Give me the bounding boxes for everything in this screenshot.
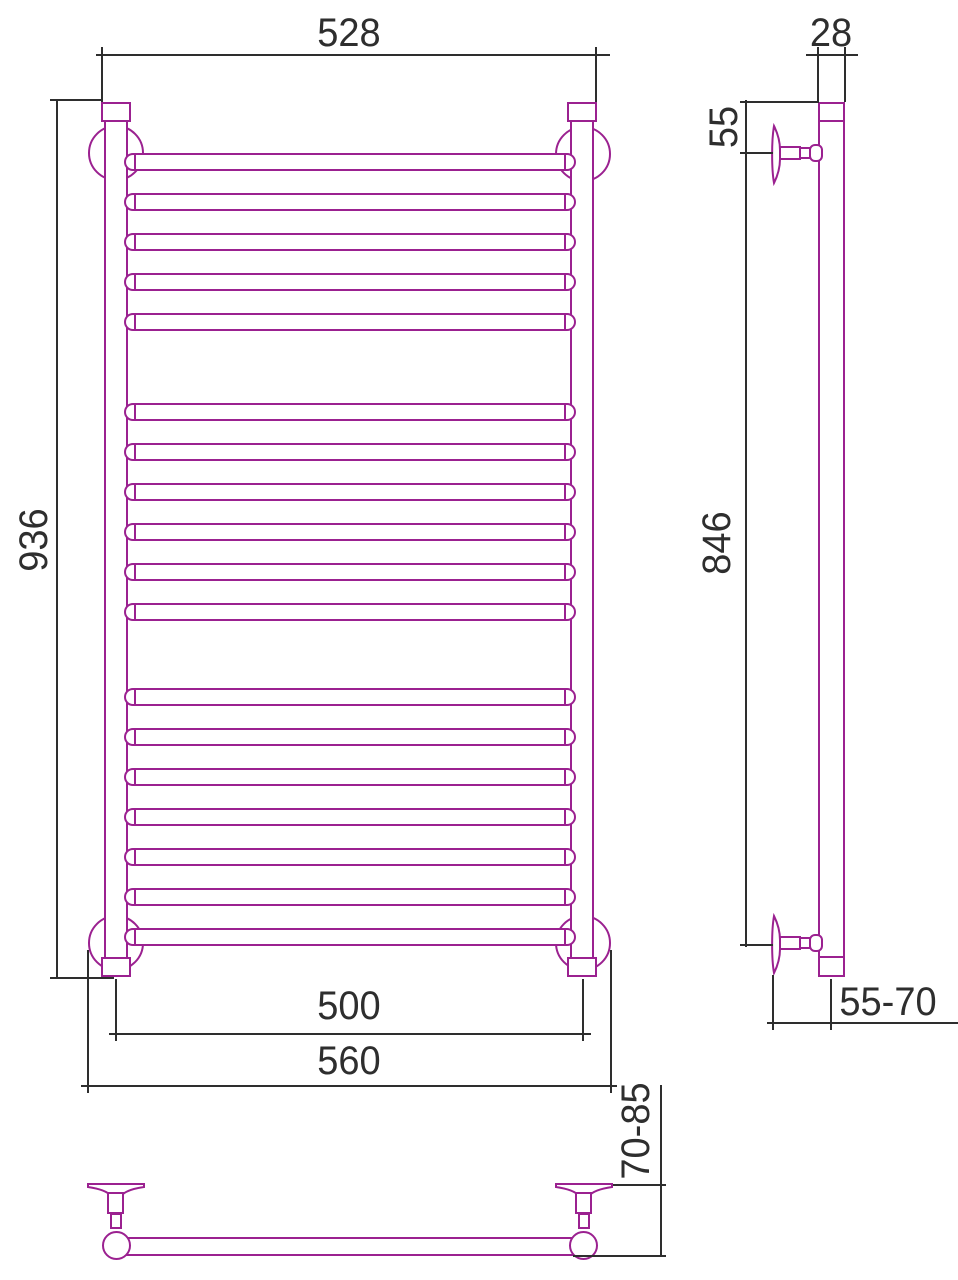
dim-70-85-label: 70-85 bbox=[616, 1069, 656, 1193]
dim-28-label: 28 bbox=[807, 13, 855, 53]
dim-28-ext-right bbox=[844, 52, 846, 102]
rung bbox=[124, 313, 576, 331]
dim-55-label: 55 bbox=[704, 89, 744, 165]
bracket-knob bbox=[810, 145, 822, 161]
bottom-view-stem-step-right bbox=[578, 1213, 590, 1229]
dim-528-ext-right bbox=[595, 52, 597, 102]
dim-70-85-line bbox=[660, 1085, 662, 1257]
dim-560-label: 560 bbox=[302, 1041, 397, 1081]
side-wall-bracket-bottom bbox=[768, 913, 824, 977]
dim-528-ext-left bbox=[101, 52, 103, 102]
dim-55-846-line bbox=[745, 100, 747, 947]
dim-500-label: 500 bbox=[302, 986, 397, 1026]
dim-560-tick-left bbox=[87, 1079, 89, 1093]
dim-560-tick-right bbox=[610, 1079, 612, 1093]
bracket-stem-step bbox=[800, 148, 810, 158]
dim-560-ext-left bbox=[87, 950, 89, 1092]
rung bbox=[124, 273, 576, 291]
dim-500-tick-right bbox=[582, 1027, 584, 1041]
dim-936-tick-top bbox=[50, 99, 103, 101]
left-post-bottom-cap bbox=[101, 957, 131, 977]
bracket-stem-step bbox=[800, 938, 810, 948]
dim-560-line bbox=[81, 1085, 617, 1087]
right-post-top-cap bbox=[567, 102, 597, 122]
dim-846-label: 846 bbox=[697, 486, 737, 600]
rung bbox=[124, 888, 576, 906]
side-post-top-cap-line bbox=[820, 120, 843, 122]
bracket-flange-profile bbox=[772, 126, 780, 183]
dim-936-line bbox=[56, 100, 58, 979]
left-post bbox=[104, 102, 128, 977]
rung bbox=[124, 688, 576, 706]
dim-55-tick-bottom bbox=[740, 152, 773, 154]
rung bbox=[124, 233, 576, 251]
rung bbox=[124, 848, 576, 866]
bottom-view-stem-left bbox=[107, 1192, 124, 1214]
dim-528-label: 528 bbox=[300, 13, 399, 53]
right-post bbox=[570, 102, 594, 977]
bracket-flange-profile bbox=[772, 916, 780, 973]
bracket-stem bbox=[780, 147, 800, 159]
rung bbox=[124, 193, 576, 211]
rung bbox=[124, 728, 576, 746]
right-post-bottom-cap bbox=[567, 957, 597, 977]
rung bbox=[124, 443, 576, 461]
bracket-knob bbox=[810, 935, 822, 951]
side-post bbox=[818, 102, 845, 977]
technical-drawing-canvas: 528 936 500 560 bbox=[0, 0, 958, 1280]
rung bbox=[124, 153, 576, 171]
rung bbox=[124, 928, 576, 946]
rung bbox=[124, 808, 576, 826]
dim-936-tick-bottom bbox=[50, 977, 114, 979]
dim-500-line bbox=[109, 1033, 591, 1035]
dim-846-tick-bottom bbox=[740, 944, 773, 946]
bottom-view-stem-right bbox=[575, 1192, 592, 1214]
left-post-top-cap bbox=[101, 102, 131, 122]
bottom-view-post-end-left bbox=[102, 1231, 131, 1260]
dim-28-ext-left bbox=[817, 52, 819, 102]
dim-70-85-tick-bottom bbox=[573, 1255, 666, 1257]
bottom-view-tube bbox=[118, 1237, 580, 1256]
dim-560-ext-right bbox=[610, 950, 612, 1092]
side-wall-bracket-top bbox=[768, 123, 824, 187]
dim-55-tick-top bbox=[740, 101, 819, 103]
rung bbox=[124, 603, 576, 621]
dim-500-tick-left bbox=[115, 1027, 117, 1041]
rung bbox=[124, 563, 576, 581]
rung bbox=[124, 403, 576, 421]
dim-55-70-label: 55-70 bbox=[831, 982, 945, 1022]
rung bbox=[124, 523, 576, 541]
dim-936-label: 936 bbox=[14, 483, 54, 597]
bottom-view-stem-step-left bbox=[110, 1213, 122, 1229]
rung bbox=[124, 483, 576, 501]
bracket-stem bbox=[780, 937, 800, 949]
rung bbox=[124, 768, 576, 786]
